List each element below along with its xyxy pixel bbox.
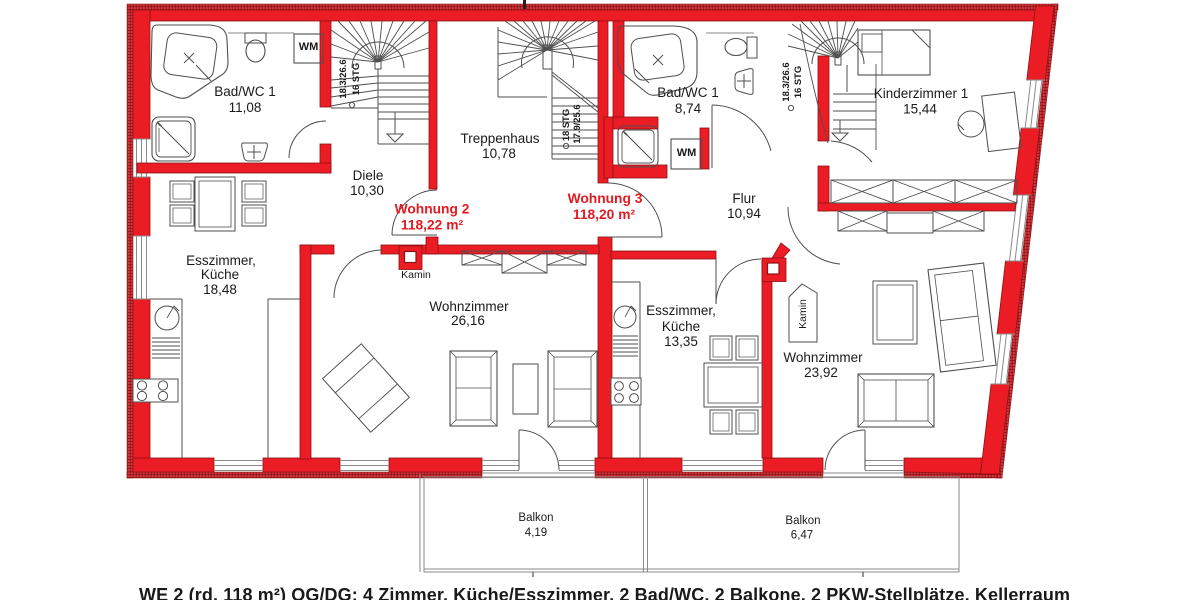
svg-text:Kinderzimmer 1: Kinderzimmer 1	[874, 86, 969, 101]
svg-text:18.3/26.6: 18.3/26.6	[780, 62, 791, 101]
svg-text:Bad/WC 1: Bad/WC 1	[657, 85, 719, 100]
svg-text:4,19: 4,19	[525, 527, 547, 539]
svg-text:18.3/26.6: 18.3/26.6	[337, 59, 348, 98]
svg-text:Wohnung 3: Wohnung 3	[568, 191, 643, 206]
svg-text:118,20 m²: 118,20 m²	[573, 207, 636, 222]
svg-text:16 STG: 16 STG	[792, 66, 803, 98]
svg-text:Kamin: Kamin	[401, 269, 431, 281]
svg-text:18 STG: 18 STG	[560, 109, 571, 141]
svg-text:Wohnung 2: Wohnung 2	[395, 202, 470, 217]
svg-text:10,94: 10,94	[727, 206, 761, 221]
svg-text:Diele: Diele	[353, 168, 384, 183]
svg-text:26,16: 26,16	[451, 313, 485, 328]
svg-text:Esszimmer,: Esszimmer,	[186, 253, 256, 268]
svg-text:Wohnzimmer: Wohnzimmer	[429, 299, 509, 314]
svg-text:Balkon: Balkon	[785, 515, 820, 527]
svg-text:Flur: Flur	[732, 191, 756, 206]
svg-text:8,74: 8,74	[675, 101, 702, 116]
svg-text:Wohnzimmer: Wohnzimmer	[783, 350, 863, 365]
svg-text:WM: WM	[677, 147, 697, 159]
svg-text:Bad/WC 1: Bad/WC 1	[214, 84, 276, 99]
svg-text:23,92: 23,92	[804, 365, 838, 380]
svg-text:Kamin: Kamin	[797, 299, 809, 329]
svg-text:118,22 m²: 118,22 m²	[401, 218, 464, 233]
svg-text:6,47: 6,47	[791, 530, 813, 542]
svg-text:17.9/25.6: 17.9/25.6	[571, 104, 582, 143]
svg-text:11,08: 11,08	[229, 100, 262, 115]
svg-text:WM: WM	[299, 41, 319, 53]
svg-text:18,48: 18,48	[203, 282, 237, 297]
svg-text:Küche: Küche	[662, 319, 700, 334]
svg-text:Esszimmer,: Esszimmer,	[646, 303, 716, 318]
svg-text:10,78: 10,78	[482, 146, 516, 161]
svg-text:16 STG: 16 STG	[350, 63, 361, 95]
svg-text:13,35: 13,35	[664, 334, 698, 349]
svg-text:WE 2 (rd. 118 m²) OG/DG: 4 Zim: WE 2 (rd. 118 m²) OG/DG: 4 Zimmer, Küche…	[139, 585, 1070, 600]
svg-text:Balkon: Balkon	[518, 512, 553, 524]
svg-text:Treppenhaus: Treppenhaus	[460, 131, 539, 146]
svg-text:10,30: 10,30	[350, 183, 384, 198]
svg-text:15,44: 15,44	[903, 102, 937, 117]
svg-text:Küche: Küche	[201, 267, 239, 282]
